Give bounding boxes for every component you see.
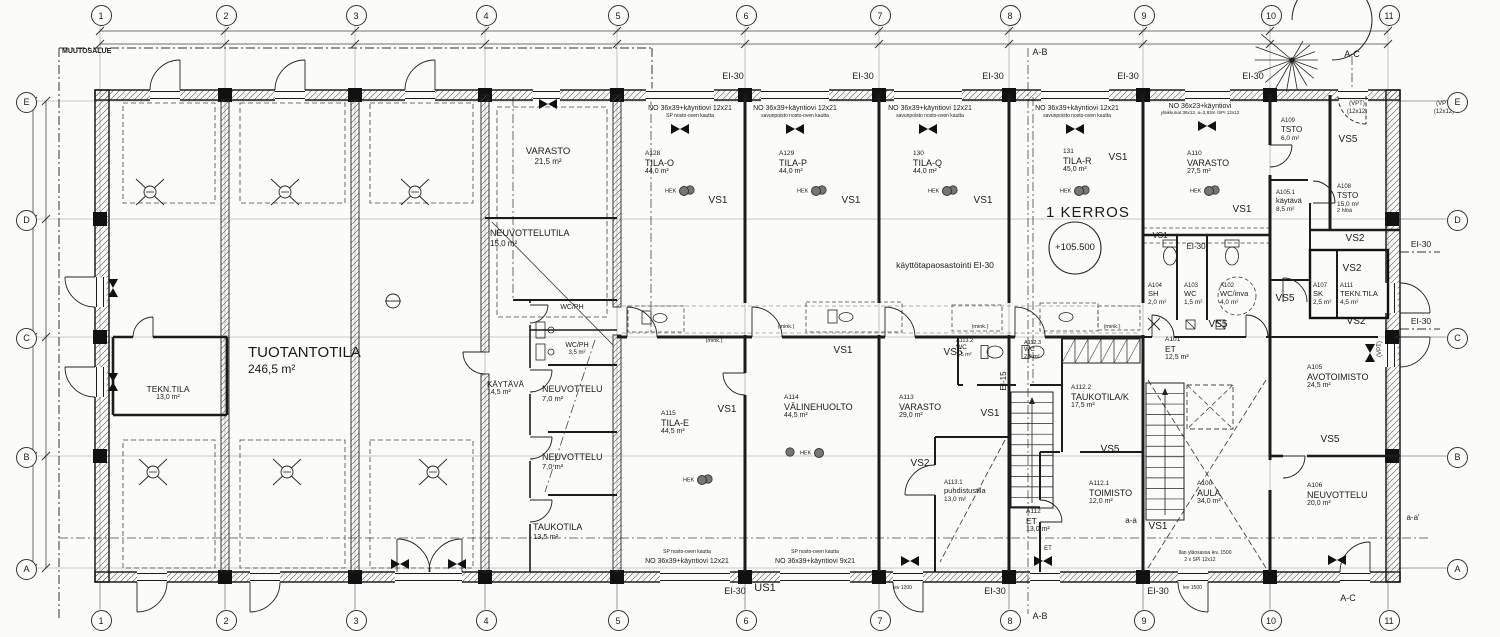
floorplan-drawing	[0, 0, 1500, 637]
floorplan-canvas: TUOTANTOTILA246,5 m²TEKN.TILA13,0 m²VARA…	[0, 0, 1500, 637]
